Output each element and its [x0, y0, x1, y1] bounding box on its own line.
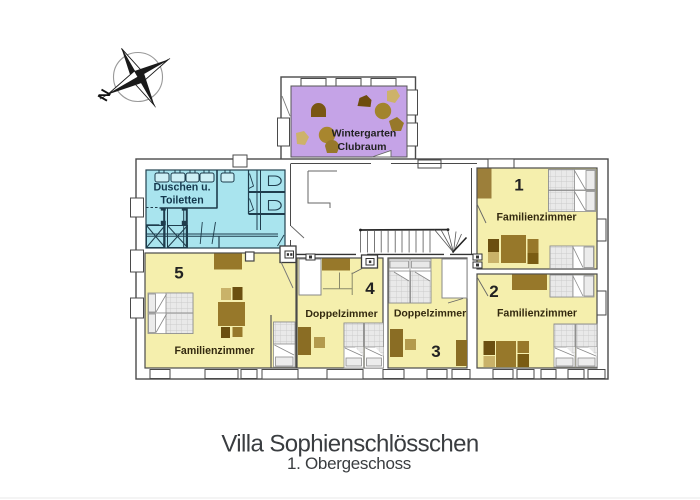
svg-text:Doppelzimmer: Doppelzimmer [394, 308, 466, 320]
svg-text:Duschen u.: Duschen u. [153, 182, 210, 194]
svg-text:Familienzimmer: Familienzimmer [497, 308, 577, 320]
svg-text:Familienzimmer: Familienzimmer [496, 212, 576, 224]
svg-text:1: 1 [514, 176, 523, 195]
svg-text:Clubraum: Clubraum [337, 141, 386, 153]
svg-text:Toiletten: Toiletten [160, 195, 203, 207]
svg-text:Familienzimmer: Familienzimmer [174, 345, 254, 357]
svg-text:5: 5 [174, 264, 183, 283]
svg-text:Doppelzimmer: Doppelzimmer [305, 308, 377, 320]
svg-text:Wintergarten: Wintergarten [332, 128, 397, 140]
svg-text:4: 4 [365, 279, 375, 298]
svg-text:3: 3 [431, 342, 440, 361]
svg-text:1. Obergeschoss: 1. Obergeschoss [287, 454, 411, 473]
svg-text:2: 2 [489, 282, 498, 301]
